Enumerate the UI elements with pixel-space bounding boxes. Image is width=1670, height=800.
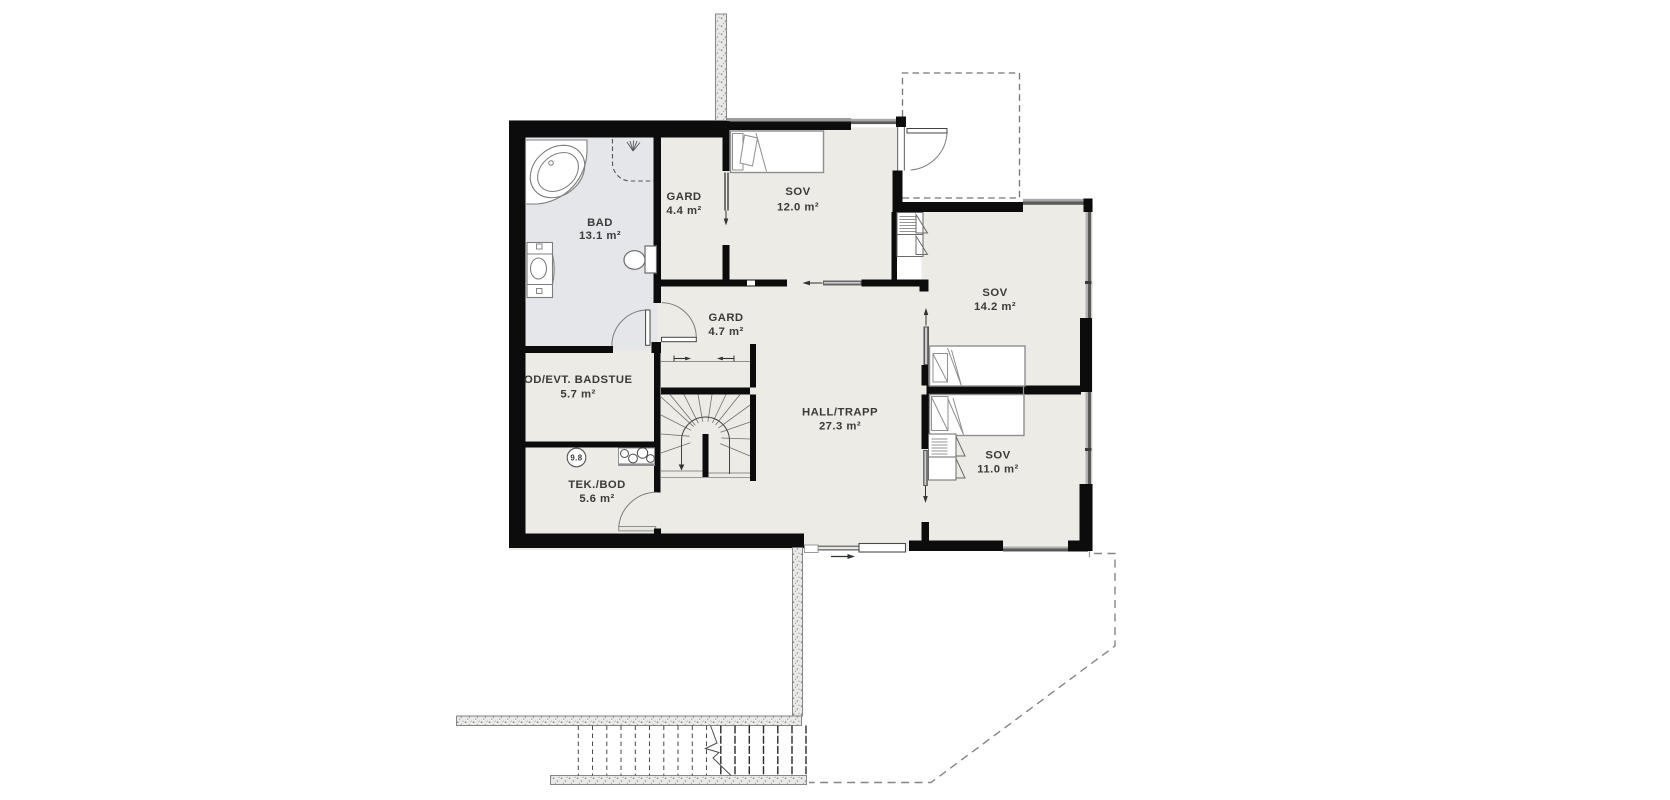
svg-text:5.6 m²: 5.6 m² — [579, 493, 614, 505]
svg-text:TEK./BOD: TEK./BOD — [568, 479, 626, 491]
svg-text:SOV: SOV — [982, 287, 1007, 299]
svg-text:9.8: 9.8 — [570, 453, 582, 462]
svg-text:GARD: GARD — [666, 191, 701, 203]
svg-text:12.0 m²: 12.0 m² — [777, 202, 819, 214]
svg-text:SOV: SOV — [785, 186, 810, 198]
svg-text:11.0 m²: 11.0 m² — [977, 464, 1018, 476]
svg-text:14.2 m²: 14.2 m² — [974, 301, 1016, 313]
svg-text:4.7 m²: 4.7 m² — [708, 326, 743, 338]
svg-text:4.4 m²: 4.4 m² — [666, 205, 701, 217]
svg-text:GARD: GARD — [708, 312, 743, 324]
svg-text:SOV: SOV — [985, 450, 1010, 462]
svg-text:27.3 m²: 27.3 m² — [819, 421, 861, 433]
svg-text:13.1 m²: 13.1 m² — [579, 230, 621, 242]
svg-text:OD/EVT. BADSTUE: OD/EVT. BADSTUE — [524, 374, 632, 386]
svg-text:HALL/TRAPP: HALL/TRAPP — [802, 407, 878, 419]
svg-text:5.7 m²: 5.7 m² — [560, 389, 595, 401]
svg-text:BAD: BAD — [587, 217, 613, 229]
